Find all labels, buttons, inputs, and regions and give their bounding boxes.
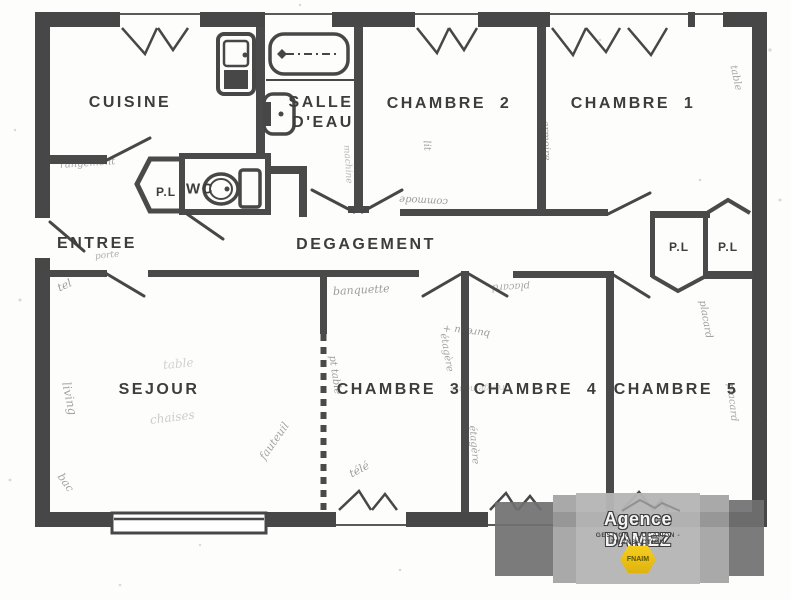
room-label-salle-deau-line2: D'EAU xyxy=(292,114,354,132)
handwritten-annotation: lit xyxy=(421,140,433,152)
kitchen-sink-icon xyxy=(218,34,254,94)
room-label-chambre1: CHAMBRE 1 xyxy=(571,95,696,113)
closet-label-pl-b: P.L xyxy=(718,240,738,254)
room-label-sejour: SEJOUR xyxy=(119,381,200,399)
handwritten-annotation: armoire xyxy=(540,120,552,161)
balcony-window xyxy=(112,513,266,533)
bathtub-icon xyxy=(266,34,354,80)
watermark-strip-right xyxy=(700,495,729,583)
watermark-block-right xyxy=(729,500,764,576)
watermark-strip-left xyxy=(553,495,576,583)
handwritten-annotation: table xyxy=(162,355,194,372)
room-label-chambre2: CHAMBRE 2 xyxy=(387,95,512,113)
room-label-chambre3: CHAMBRE 3 xyxy=(337,381,462,399)
room-label-salle-deau-line1: SALLE xyxy=(289,94,354,112)
closet-label-pl-wc: P.L xyxy=(156,185,176,199)
facade-lines xyxy=(35,14,767,525)
watermark-block-left xyxy=(495,502,553,576)
room-label-degagement: DEGAGEMENT xyxy=(296,236,436,254)
exterior-walls xyxy=(35,12,767,527)
watermark-panel: Agence DAMEZ GESTION - LOCATION - TRANSA… xyxy=(576,493,700,584)
room-label-wc: WC xyxy=(186,181,214,198)
agency-tagline: GESTION - LOCATION - TRANSACTION xyxy=(576,532,700,546)
floorplan-page: CUISINE SALLE D'EAU CHAMBRE 2 CHAMBRE 1 … xyxy=(0,0,791,600)
room-label-chambre5: CHAMBRE 5 xyxy=(614,381,739,399)
handwritten-annotation: placard xyxy=(491,280,530,293)
room-label-entree: ENTREE xyxy=(57,235,137,253)
closet-label-pl-a: P.L xyxy=(669,240,689,254)
room-label-cuisine: CUISINE xyxy=(89,94,171,112)
handwritten-annotation: rangements xyxy=(450,382,505,394)
